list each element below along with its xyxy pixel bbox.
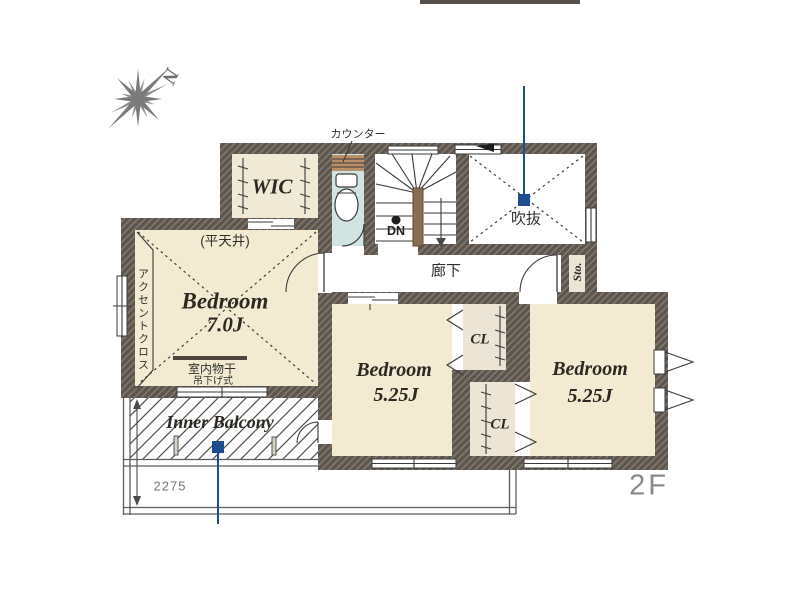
laundry-note-1: 室内物干: [188, 363, 236, 375]
counter-label: カウンター: [331, 130, 386, 141]
cropped-banner-edge: [420, 0, 580, 4]
bedroom-main-label: Bedroom: [182, 290, 269, 313]
bedroom-middle-label: Bedroom: [356, 360, 432, 380]
void-label: 吹抜: [511, 212, 541, 227]
floorplan-page: カウンター WIC DN 吹抜 廊下 Sto. (平天井) アクセントクロス B…: [0, 0, 800, 609]
ceiling-note: (平天井): [200, 234, 250, 248]
window-bedroom-right-awning-2: [654, 388, 693, 412]
accent-wall-note: アクセントクロス: [137, 268, 148, 372]
window-bedroom-right-bottom: [524, 459, 612, 468]
floorplan-graphic: [0, 0, 800, 609]
laundry-pole: [173, 356, 247, 360]
storage-label: Sto.: [571, 262, 583, 281]
closet-lower-label: CL: [490, 418, 509, 433]
stair-rail: [413, 188, 423, 246]
window-bedroom-middle-bottom: [372, 459, 456, 468]
floor-label: 2F: [629, 472, 669, 501]
hallway-label: 廊下: [431, 264, 461, 279]
bedroom-middle-size: 5.25J: [374, 385, 419, 405]
inner-balcony-label: Inner Balcony: [166, 413, 274, 431]
toilet-fixture: [335, 174, 358, 221]
window-bedroom-right-awning-1: [654, 350, 693, 374]
wic-label: WIC: [252, 177, 293, 198]
dn-label: DN: [387, 225, 405, 238]
window-bedroom-main-balcony: [177, 387, 267, 397]
laundry-note-2: 吊下げ式: [193, 377, 233, 387]
window-wic-void-topwall: [455, 144, 501, 155]
bedroom-right-label: Bedroom: [552, 359, 628, 379]
bedroom-right-size: 5.25J: [568, 386, 613, 406]
balcony-dimension-label: 2275: [154, 480, 187, 493]
window-void-rightwall: [586, 208, 596, 242]
closet-upper-label: CL: [470, 333, 489, 348]
bedroom-main-size: 7.0J: [207, 315, 244, 336]
